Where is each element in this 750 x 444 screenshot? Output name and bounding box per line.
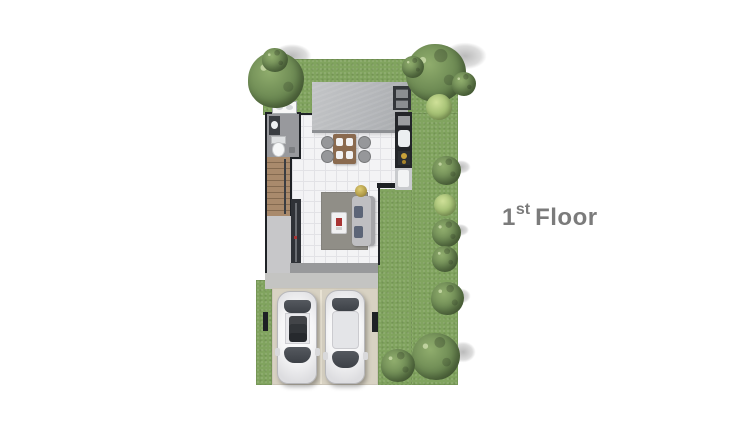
stove bbox=[398, 151, 410, 165]
tv-console bbox=[291, 199, 301, 266]
tree-canopy-lobe bbox=[452, 72, 476, 96]
tree-canopy-lobe bbox=[262, 48, 288, 72]
car-roof bbox=[285, 313, 310, 344]
floor-word: Floor bbox=[535, 204, 598, 231]
parking-divider bbox=[320, 290, 322, 384]
refrigerator bbox=[395, 168, 412, 190]
car-mirror bbox=[315, 348, 320, 356]
dining-chair bbox=[321, 136, 334, 149]
car-mirror bbox=[275, 348, 280, 356]
microwave bbox=[398, 116, 410, 126]
shrub bbox=[434, 194, 456, 216]
bathroom bbox=[265, 112, 301, 159]
car-windshield bbox=[284, 347, 311, 363]
stair-rail bbox=[284, 159, 286, 214]
decor-accent bbox=[294, 236, 297, 239]
dining-chair bbox=[358, 136, 371, 149]
books bbox=[336, 218, 342, 226]
dining-table bbox=[333, 134, 356, 164]
car-2 bbox=[325, 290, 365, 384]
shrub bbox=[432, 156, 461, 185]
car-1 bbox=[277, 291, 317, 384]
car-roof bbox=[332, 311, 359, 349]
toilet-icon bbox=[272, 142, 285, 157]
staircase bbox=[265, 157, 292, 217]
tree bbox=[412, 333, 460, 380]
plate bbox=[336, 151, 343, 159]
shrub bbox=[431, 282, 464, 315]
refrigerator-door bbox=[398, 170, 409, 187]
porch bbox=[265, 273, 378, 289]
floor-label: 1stFloor bbox=[502, 204, 598, 230]
car-rear-window bbox=[284, 300, 311, 313]
floor-suffix: st bbox=[516, 201, 530, 218]
coffee-table bbox=[331, 212, 347, 234]
books bbox=[336, 227, 342, 230]
floor-drain bbox=[289, 147, 295, 153]
sofa-cushion bbox=[354, 206, 363, 218]
entry-landing bbox=[265, 216, 292, 274]
burner bbox=[401, 153, 407, 159]
plate bbox=[336, 138, 343, 146]
kitchen-counter bbox=[395, 112, 412, 168]
tv-screen bbox=[295, 203, 297, 262]
car-rear-window bbox=[332, 298, 359, 311]
ac-fan bbox=[396, 89, 408, 98]
floor-number: 1 bbox=[502, 204, 516, 231]
ac-fan bbox=[396, 100, 408, 108]
shrub bbox=[432, 219, 461, 247]
vanity bbox=[269, 116, 280, 135]
fence-post bbox=[263, 312, 268, 331]
sofa-cushion bbox=[354, 226, 363, 238]
car-mirror bbox=[363, 352, 368, 360]
burner bbox=[402, 160, 406, 164]
sofa bbox=[352, 196, 375, 246]
kitchen-sink bbox=[398, 130, 410, 147]
plant-icon bbox=[355, 185, 367, 197]
tree-canopy-lobe bbox=[402, 56, 424, 78]
plate bbox=[346, 151, 353, 159]
car-mirror bbox=[323, 352, 328, 360]
ac-unit bbox=[393, 86, 411, 110]
sink-icon bbox=[271, 121, 278, 129]
car-sunroof bbox=[289, 316, 307, 342]
dining-chair bbox=[321, 150, 334, 163]
shrub bbox=[432, 246, 458, 272]
fence-post bbox=[372, 312, 378, 332]
lawn-left-strip bbox=[256, 280, 272, 385]
shrub bbox=[381, 349, 415, 382]
dining-chair bbox=[358, 150, 371, 163]
car-windshield bbox=[332, 351, 359, 368]
shrub bbox=[426, 94, 452, 120]
plate bbox=[346, 138, 353, 146]
floor-plan-canvas: 1stFloor bbox=[0, 0, 750, 444]
